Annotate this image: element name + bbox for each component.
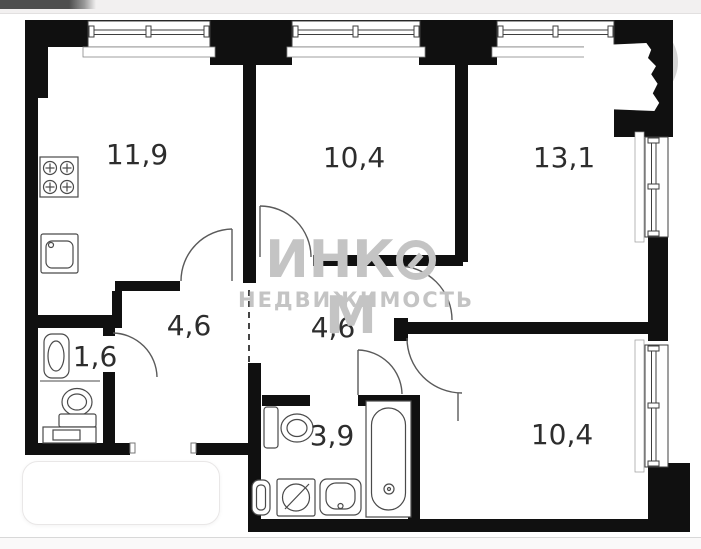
room-label-hall-left: 4,6: [149, 309, 229, 342]
bathroom-sink-icon: [320, 479, 361, 515]
room-label-wc: 1,6: [55, 340, 135, 373]
watermark-text-left: ИНК: [265, 230, 395, 290]
entrance-door-ticks: [130, 443, 196, 453]
kitchen-sink-icon: [41, 234, 78, 273]
window-icon: [83, 21, 619, 57]
bottom-margin-area: [0, 538, 701, 549]
water-heater-icon: [252, 480, 270, 515]
wc-cabinet-icon: [43, 427, 96, 443]
wc-toilet-icon: [59, 389, 96, 428]
room-label-top-right: 13,1: [524, 141, 604, 174]
top-bar: [0, 0, 701, 14]
top-bar-smudge: [0, 0, 96, 9]
window-icon: [635, 132, 668, 472]
watermark-logo-o-icon: [396, 240, 436, 280]
watermark-subtitle: НЕДВИЖИМОСТЬ: [238, 288, 464, 312]
room-label-top-middle: 10,4: [314, 141, 394, 174]
bathtub-icon: [366, 401, 411, 517]
whiteout-patch-bottom-left: [22, 461, 220, 525]
room-label-bathroom: 3,9: [292, 419, 372, 452]
washing-machine-icon: [277, 479, 315, 516]
room-label-bottom-right: 10,4: [522, 418, 602, 451]
floor-plan: 11,9 10,4 13,1 4,6 4,6 1,6 3,9 10,4 ИНКМ…: [0, 0, 701, 549]
stove-icon: [40, 157, 78, 197]
room-label-kitchen: 11,9: [97, 138, 177, 171]
